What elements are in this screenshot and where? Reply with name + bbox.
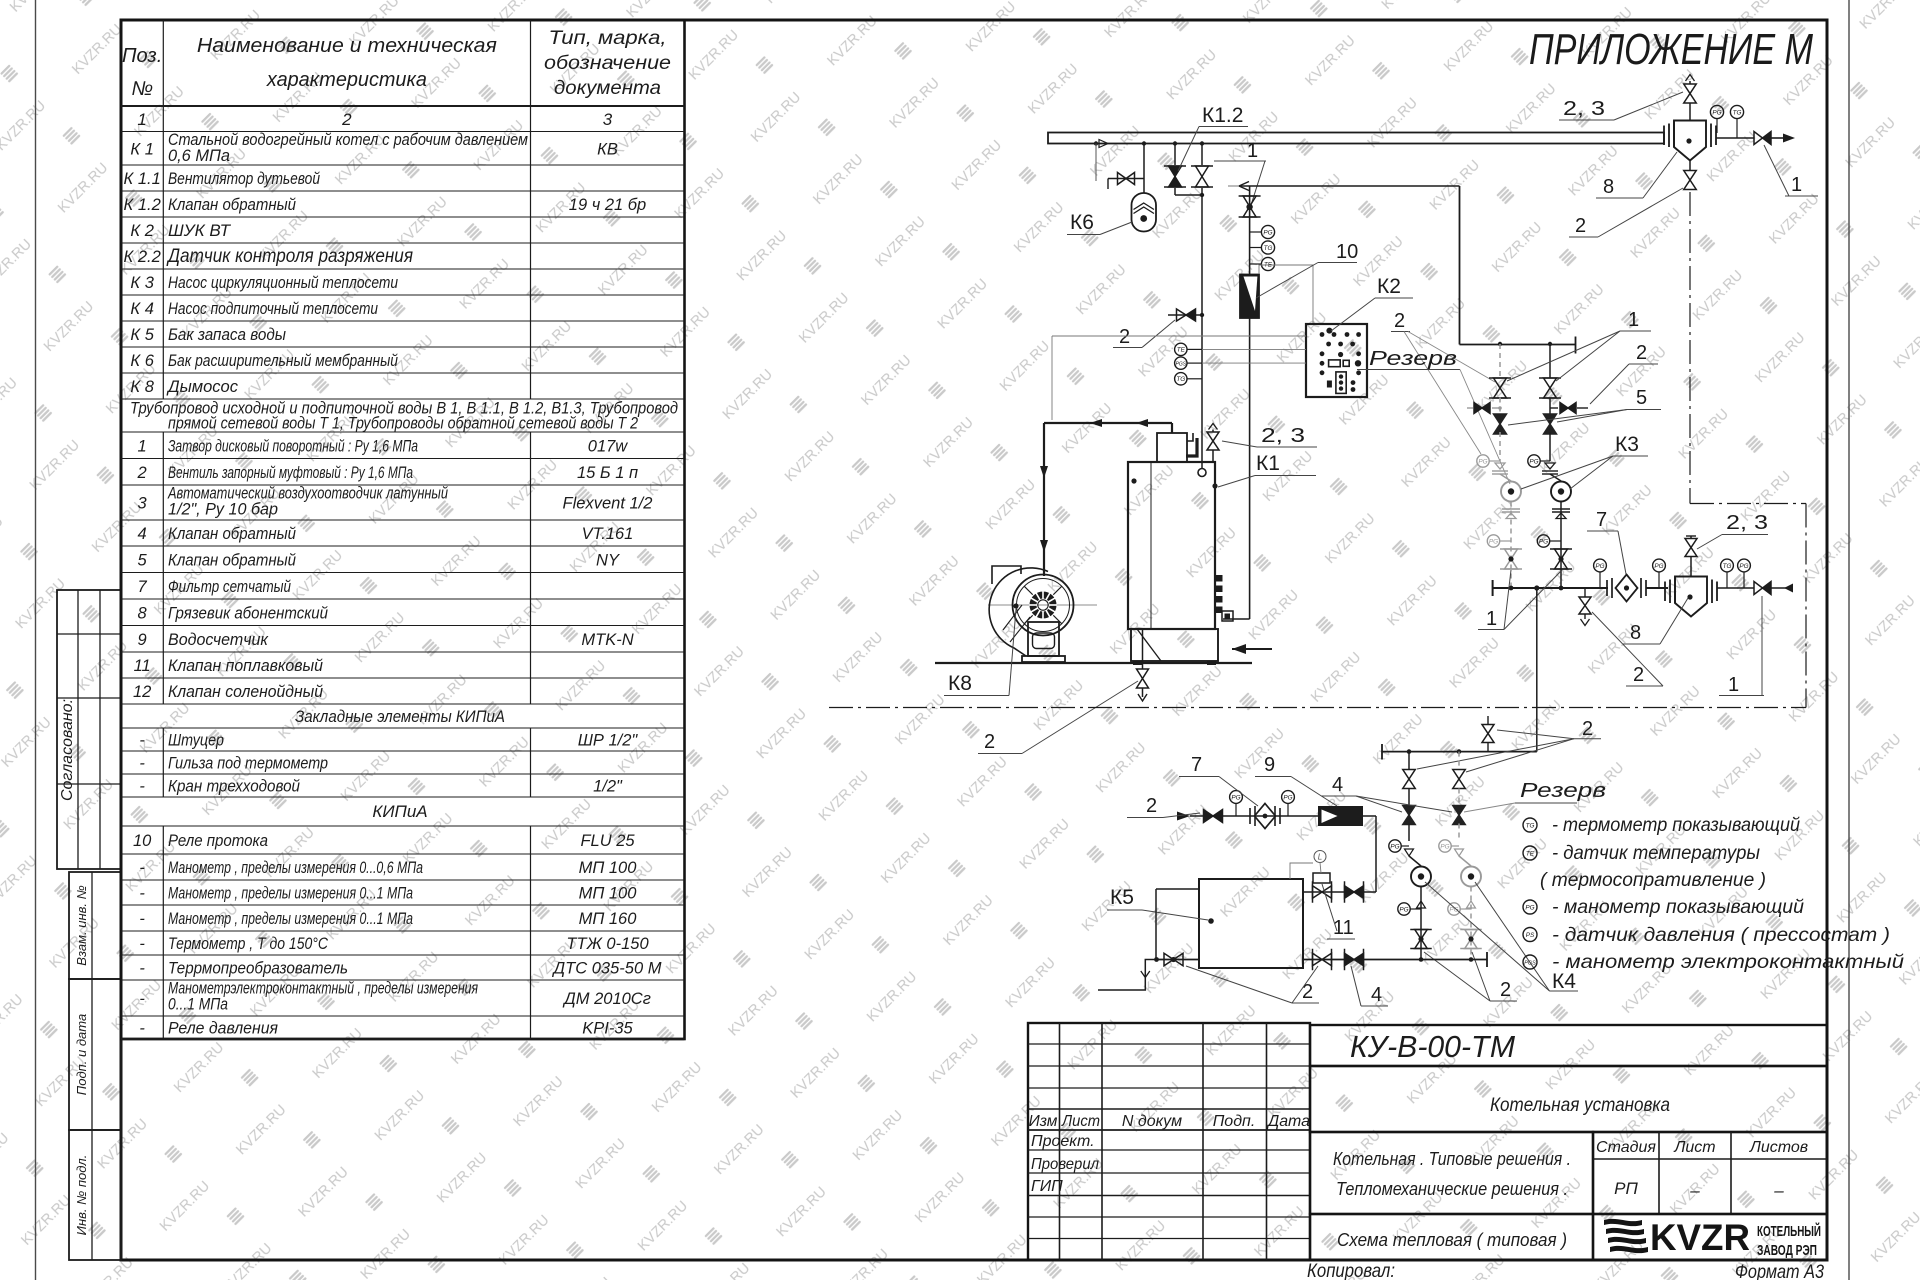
svg-text:Закладные элементы КИПиА: Закладные элементы КИПиА [295,707,505,726]
svg-text:Насос циркуляционный теплосети: Насос циркуляционный теплосети [168,274,398,292]
svg-text:TG: TG [1176,376,1185,383]
svg-text:Реле протока: Реле протока [168,832,268,850]
svg-text:Вентилятор дутьевой: Вентилятор дутьевой [168,170,320,188]
svg-text:обозначение: обозначение [544,53,671,74]
svg-text:TG: TG [1264,245,1273,252]
svg-text:КВ: КВ [597,140,618,158]
svg-text:РП: РП [1614,1179,1638,1198]
svg-text:9: 9 [138,631,147,649]
svg-text:VT.161: VT.161 [582,525,634,543]
svg-text:0,6 МПа: 0,6 МПа [168,147,230,165]
svg-text:Клапан поплавковый: Клапан поплавковый [168,657,323,675]
svg-text:10: 10 [133,832,152,850]
svg-text:Датчик контроля разряжения: Датчик контроля разряжения [166,246,413,267]
svg-text:4: 4 [1332,774,1343,796]
svg-text:( термосопративление ): ( термосопративление ) [1540,870,1766,891]
svg-text:Подп.: Подп. [1213,1113,1256,1130]
svg-text:TG: TG [1733,109,1742,116]
svg-text:9: 9 [1264,754,1275,776]
svg-text:Подп. и дата: Подп. и дата [74,1014,89,1095]
svg-text:PG: PG [1739,563,1748,570]
svg-text:К1: К1 [1256,452,1280,475]
svg-text:1/2", Ру 10 бар: 1/2", Ру 10 бар [168,501,278,519]
svg-text:Реле давления: Реле давления [168,1020,278,1038]
svg-text:К4: К4 [1552,970,1576,993]
svg-text:Flexvent 1/2: Flexvent 1/2 [563,495,653,513]
svg-text:Манометр , пределы измерения: Манометр , пределы измерения 0...1 МПа [168,885,413,903]
svg-text:PG: PG [1283,794,1292,801]
svg-text:характеристика: характеристика [266,69,427,91]
svg-text:Водосчетчик: Водосчетчик [168,631,269,649]
svg-text:МП 100: МП 100 [579,859,638,877]
svg-text:Дата: Дата [1266,1113,1310,1130]
svg-text:К6: К6 [1070,211,1094,234]
svg-text:15 Б 1 п: 15 Б 1 п [577,464,638,482]
svg-text:КИПиА: КИПиА [372,802,427,821]
svg-text:Манометр , пределы измерения: Манометр , пределы измерения 0...0,6 МПа [168,859,423,877]
svg-text:К2: К2 [1377,275,1401,298]
svg-text:Бак запаса воды: Бак запаса воды [168,326,286,344]
svg-text:Манометр , пределы измерения: Манометр , пределы измерения 0...1 МПа [168,910,413,928]
svg-text:К 4: К 4 [130,300,154,318]
svg-text:Проверил: Проверил [1031,1156,1099,1173]
svg-text:PG: PG [1390,843,1399,850]
svg-text:К 2.2: К 2.2 [124,248,161,266]
svg-text:PG: PG [1529,458,1538,465]
svg-text:Террмопреобразователь: Террмопреобразователь [168,960,348,978]
svg-text:KVZR: KVZR [1650,1217,1750,1258]
svg-text:2, 3: 2, 3 [1563,98,1605,120]
svg-text:ДМ 2010Сг: ДМ 2010Сг [562,990,651,1008]
svg-text:№: № [131,78,153,100]
svg-text:11: 11 [134,657,151,675]
svg-text:Согласовано:: Согласовано: [59,699,76,801]
svg-text:К 5: К 5 [130,326,154,344]
svg-text:L: L [1318,853,1322,862]
svg-text:Изм: Изм [1029,1113,1058,1130]
svg-text:Штуцер: Штуцер [168,732,224,750]
svg-text:Вентиль запорный муфтовый : Р: Вентиль запорный муфтовый : Ру 1,6 МПа [168,464,413,482]
svg-text:PG: PG [1595,563,1604,570]
svg-text:N докум: N докум [1122,1113,1182,1130]
svg-text:4: 4 [138,525,147,543]
svg-text:PG: PG [1263,229,1272,236]
svg-text:5: 5 [1636,387,1647,409]
svg-text:Лист: Лист [1061,1113,1100,1130]
svg-text:1: 1 [1247,140,1258,162]
svg-text:4: 4 [1371,984,1382,1006]
svg-text:PGS: PGS [1524,960,1536,966]
svg-text:Дымосос: Дымосос [166,378,239,396]
svg-text:3: 3 [603,110,613,129]
svg-text:ГИП: ГИП [1031,1178,1063,1195]
svg-text:Котельная установка: Котельная установка [1490,1095,1670,1116]
svg-text:Инв. № подл.: Инв. № подл. [74,1155,89,1236]
svg-text:К8: К8 [948,672,972,695]
svg-text:3: 3 [138,495,148,513]
svg-text:MTK-N: MTK-N [581,631,633,649]
svg-text:–: – [1773,1181,1784,1200]
svg-text:Лист: Лист [1673,1139,1715,1156]
svg-text:-: - [139,935,145,953]
svg-text:0...1 МПа: 0...1 МПа [168,996,228,1014]
svg-text:ДТС 035-50 М: ДТС 035-50 М [552,960,662,978]
svg-text:2: 2 [1500,979,1511,1001]
svg-text:2, 3: 2, 3 [1726,512,1768,534]
svg-text:Взам. инв. №: Взам. инв. № [74,885,89,965]
svg-text:Гильза под термометр: Гильза под термометр [168,755,328,773]
svg-text:PG: PG [1231,794,1240,801]
svg-text:Бак расширительный мембранный: Бак расширительный мембранный [168,352,398,370]
svg-text:- термометр показывающий: - термометр показывающий [1552,815,1800,836]
svg-text:Стадия: Стадия [1596,1139,1656,1156]
svg-text:7: 7 [1191,754,1202,776]
svg-text:1: 1 [1628,309,1639,331]
svg-text:PG: PG [1399,906,1408,913]
svg-text:-: - [139,755,145,773]
svg-text:PG: PG [1654,563,1663,570]
svg-text:- манометр показывающий: - манометр показывающий [1552,897,1804,918]
svg-text:Листов: Листов [1749,1139,1808,1156]
svg-text:Грязевик абонентский: Грязевик абонентский [168,604,328,622]
svg-text:2: 2 [1302,981,1313,1003]
svg-text:1: 1 [1486,608,1497,630]
svg-text:ПРИЛОЖЕНИЕ М: ПРИЛОЖЕНИЕ М [1529,25,1813,74]
svg-text:Копировал:: Копировал: [1307,1261,1395,1280]
svg-text:TG: TG [1526,822,1535,829]
svg-text:PG: PG [1539,538,1548,545]
svg-text:- датчик температуры: - датчик температуры [1552,843,1760,864]
svg-text:7: 7 [1596,509,1607,531]
svg-text:-: - [139,910,145,928]
svg-text:К 1.1: К 1.1 [124,170,161,188]
svg-text:1: 1 [137,110,146,129]
svg-text:Клапан соленойдный: Клапан соленойдный [168,683,323,701]
svg-text:Резерв: Резерв [1520,780,1606,802]
svg-text:КОТЕЛЬНЫЙ: КОТЕЛЬНЫЙ [1757,1222,1821,1240]
svg-text:Котельная . Типовые решения .: Котельная . Типовые решения . [1333,1148,1571,1169]
svg-text:2: 2 [1575,215,1586,237]
svg-text:2: 2 [1636,342,1647,364]
svg-text:К 8: К 8 [130,378,154,396]
svg-text:2, 3: 2, 3 [1261,425,1305,447]
svg-text:ШУК ВТ: ШУК ВТ [168,222,232,240]
svg-text:К 3: К 3 [130,274,154,292]
svg-text:-: - [139,960,145,978]
svg-text:Тип, марка,: Тип, марка, [549,28,667,49]
svg-text:Схема тепловая ( типовая ): Схема тепловая ( типовая ) [1337,1229,1567,1250]
svg-text:1: 1 [1728,674,1739,696]
svg-text:прямой сетевой воды Т 1,: прямой сетевой воды Т 1, Трубопроводы об… [168,415,638,433]
svg-text:PG: PG [1440,843,1449,850]
svg-text:–: – [1689,1181,1700,1200]
svg-text:PG: PG [1489,538,1498,545]
svg-text:PS: PS [1526,932,1535,939]
svg-text:Клапан обратный: Клапан обратный [168,525,296,543]
svg-text:-: - [139,885,145,903]
svg-text:ЗАВОД РЭП: ЗАВОД РЭП [1757,1242,1817,1259]
svg-text:Резерв: Резерв [1369,348,1457,370]
svg-text:- манометр электроконтактный: - манометр электроконтактный [1552,952,1904,973]
svg-text:7: 7 [138,578,148,596]
svg-text:Насос подпиточный теплосети: Насос подпиточный теплосети [168,300,378,318]
svg-text:К 6: К 6 [130,352,154,370]
svg-text:2: 2 [1633,664,1644,686]
svg-text:5: 5 [138,551,148,569]
svg-text:-: - [139,859,145,877]
svg-text:Проект.: Проект. [1031,1133,1095,1150]
svg-text:10: 10 [1336,241,1358,263]
svg-text:Формат А3: Формат А3 [1735,1262,1824,1280]
svg-text:-: - [139,778,145,796]
svg-text:2: 2 [1582,718,1593,740]
svg-text:К 2: К 2 [130,222,154,240]
svg-text:К 1.2: К 1.2 [124,196,161,214]
svg-text:К3: К3 [1615,433,1639,456]
svg-text:2: 2 [1119,326,1130,348]
svg-text:1/2": 1/2" [593,778,623,796]
svg-text:2: 2 [137,464,147,482]
svg-text:TE: TE [1177,347,1186,354]
svg-text:- датчик давления ( прессос: - датчик давления ( прессостат ) [1552,925,1890,946]
svg-text:МП 160: МП 160 [579,910,638,928]
svg-text:12: 12 [133,683,151,701]
svg-text:Тепломеханические решения .: Тепломеханические решения . [1336,1178,1568,1199]
svg-text:документа: документа [554,78,661,99]
svg-text:Затвор дисковый поворотный :: Затвор дисковый поворотный : Ру 1,6 МПа [168,437,418,455]
svg-text:NY: NY [596,551,620,569]
svg-text:2: 2 [984,731,995,753]
svg-text:ТТЖ 0-150: ТТЖ 0-150 [566,935,649,953]
svg-text:Наименование и техническая: Наименование и техническая [197,35,497,57]
svg-text:Термометр , Т до 150°С: Термометр , Т до 150°С [168,935,328,953]
svg-text:Клапан обратный: Клапан обратный [168,196,296,214]
svg-text:ШР 1/2": ШР 1/2" [578,732,639,750]
svg-text:-: - [139,990,145,1008]
svg-text:1: 1 [138,437,147,455]
svg-text:8: 8 [1630,622,1641,644]
svg-text:Фильтр сетчатый: Фильтр сетчатый [168,578,291,596]
svg-text:2: 2 [1146,795,1157,817]
svg-text:PG: PG [1712,109,1721,116]
svg-text:2: 2 [1394,310,1405,332]
svg-text:1: 1 [1791,174,1802,196]
svg-text:Поз.: Поз. [122,45,162,67]
svg-text:PG: PG [1478,458,1487,465]
svg-text:FLU 25: FLU 25 [580,832,635,850]
svg-text:2: 2 [341,110,352,129]
svg-text:PGS: PGS [1176,361,1187,367]
svg-text:К1.2: К1.2 [1202,104,1243,127]
svg-text:КУ-В-00-ТМ: КУ-В-00-ТМ [1350,1029,1515,1064]
svg-text:TE: TE [1526,850,1535,857]
svg-text:-: - [139,732,145,750]
svg-text:-: - [139,1020,145,1038]
svg-text:К5: К5 [1110,886,1134,909]
svg-text:TG: TG [1723,563,1732,570]
svg-text:К 1: К 1 [130,140,154,158]
svg-text:Кран трехходовой: Кран трехходовой [168,778,300,796]
svg-text:KPI-35: KPI-35 [582,1020,633,1038]
svg-text:Клапан обратный: Клапан обратный [168,551,296,569]
svg-text:8: 8 [1603,176,1614,198]
svg-text:8: 8 [138,604,148,622]
svg-text:19 ч 21 бр: 19 ч 21 бр [569,196,646,214]
svg-text:PG: PG [1525,904,1534,911]
svg-text:МП 100: МП 100 [579,885,638,903]
svg-text:017w: 017w [588,437,629,455]
